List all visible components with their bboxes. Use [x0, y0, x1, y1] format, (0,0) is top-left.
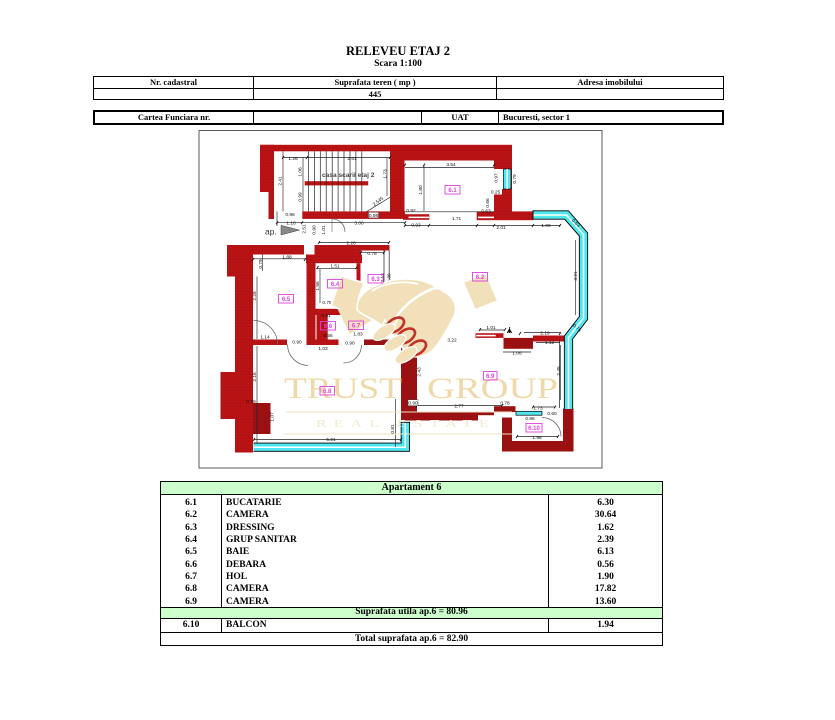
svg-text:6.4: 6.4 [331, 282, 340, 288]
svg-text:2.61: 2.61 [347, 156, 357, 162]
svg-text:1.26: 1.26 [288, 156, 298, 162]
svg-text:0.79: 0.79 [258, 259, 264, 269]
svg-text:3.54: 3.54 [446, 162, 456, 168]
svg-text:1.07: 1.07 [270, 412, 276, 422]
svg-text:2.41: 2.41 [278, 176, 284, 186]
svg-text:2.19: 2.19 [540, 331, 550, 337]
svg-text:0.79: 0.79 [512, 174, 518, 184]
svg-text:1.80: 1.80 [418, 185, 424, 195]
svg-text:1.98: 1.98 [532, 435, 542, 441]
svg-text:6.8: 6.8 [323, 389, 332, 395]
svg-text:1.01: 1.01 [486, 325, 496, 331]
svg-text:ap.: ap. [265, 227, 277, 237]
svg-text:0.66: 0.66 [485, 198, 491, 208]
svg-text:REAL ESTATE: REAL ESTATE [316, 418, 496, 430]
svg-text:6.1: 6.1 [448, 188, 457, 194]
svg-text:5.21: 5.21 [326, 437, 336, 443]
svg-text:2.43: 2.43 [417, 367, 423, 377]
svg-text:1.03: 1.03 [318, 346, 328, 352]
svg-text:3.22: 3.22 [447, 338, 457, 344]
svg-text:3.21: 3.21 [573, 271, 579, 281]
svg-text:1.73: 1.73 [383, 169, 389, 179]
svg-text:1.12: 1.12 [545, 340, 555, 346]
svg-text:0.86: 0.86 [525, 416, 535, 422]
svg-text:1.83: 1.83 [353, 332, 363, 338]
svg-text:6.7: 6.7 [352, 324, 361, 330]
svg-text:1.06: 1.06 [298, 167, 304, 177]
svg-text:3.00: 3.00 [354, 221, 364, 227]
svg-text:6.5: 6.5 [282, 297, 291, 303]
svg-text:0.96: 0.96 [285, 212, 295, 218]
svg-text:6.3: 6.3 [371, 277, 380, 283]
svg-text:1.71: 1.71 [452, 216, 462, 222]
svg-text:0.97: 0.97 [494, 173, 500, 183]
svg-text:1.14: 1.14 [260, 335, 270, 341]
svg-text:0.63: 0.63 [481, 209, 491, 215]
svg-text:2.545: 2.545 [372, 195, 385, 207]
svg-text:2.26: 2.26 [346, 241, 356, 247]
svg-text:1.01: 1.01 [321, 225, 327, 235]
svg-text:0.93: 0.93 [411, 223, 421, 229]
svg-text:0.99: 0.99 [298, 192, 304, 202]
svg-text:2.51: 2.51 [302, 224, 308, 234]
svg-text:1.56: 1.56 [315, 281, 321, 291]
svg-text:1.88: 1.88 [282, 254, 292, 260]
svg-text:0.91: 0.91 [321, 313, 331, 319]
svg-text:6.6: 6.6 [324, 324, 333, 330]
svg-text:2.01: 2.01 [496, 225, 506, 231]
svg-text:2.28: 2.28 [252, 291, 258, 301]
svg-text:6.9: 6.9 [486, 374, 495, 380]
svg-text:0.90: 0.90 [312, 225, 318, 235]
svg-text:0.90: 0.90 [408, 401, 418, 407]
svg-text:1.51: 1.51 [330, 263, 340, 269]
svg-text:0.49: 0.49 [246, 399, 256, 405]
svg-text:1.06: 1.06 [541, 223, 551, 229]
svg-text:0.92: 0.92 [406, 208, 416, 214]
svg-text:casa scarii etaj 2: casa scarii etaj 2 [322, 172, 375, 179]
svg-text:0.25: 0.25 [491, 190, 501, 196]
svg-text:2.16: 2.16 [252, 372, 258, 382]
svg-text:TRUST: TRUST [284, 372, 402, 405]
svg-text:0.60: 0.60 [547, 411, 557, 417]
svg-text:6.2: 6.2 [476, 275, 485, 281]
svg-text:0.56: 0.56 [323, 333, 333, 339]
svg-text:1.73: 1.73 [533, 406, 543, 412]
svg-text:0.78: 0.78 [367, 251, 377, 257]
svg-text:0.98: 0.98 [369, 213, 379, 219]
svg-text:0.90: 0.90 [292, 340, 302, 346]
svg-text:1.06: 1.06 [512, 351, 522, 357]
svg-text:1.18: 1.18 [286, 221, 296, 227]
svg-text:0.90: 0.90 [345, 341, 355, 347]
svg-text:6.10: 6.10 [528, 426, 540, 432]
